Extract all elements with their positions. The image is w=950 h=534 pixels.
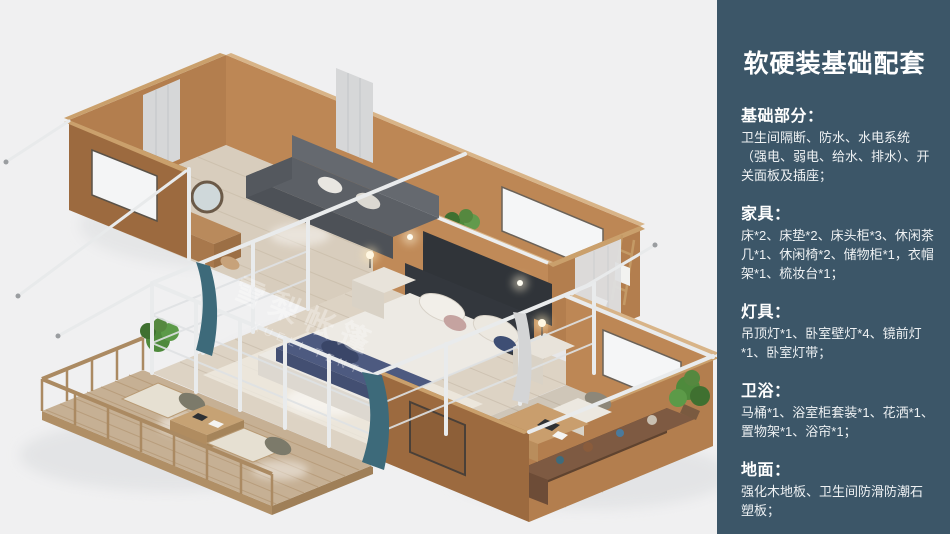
section-heading: 地面： [741,456,934,480]
section-body: 床*2、床垫*2、床头柜*3、休闲茶几*1、休闲椅*2、储物柜*1，衣帽架*1、… [741,227,934,284]
slide: 雪梨帐篷 XUELI TENT 软硬装基础配套 基础部分： 卫生间隔断、防水、水… [0,0,950,534]
curtain [336,68,373,163]
section-flooring: 地面： 强化木地板、卫生间防滑防潮石塑板； [741,456,934,521]
section-body: 卫生间隔断、防水、水电系统（强电、弱电、给水、排水）、开关面板及插座； [741,129,934,186]
lamp-icon [538,319,546,327]
sidebar-title: 软硬装基础配套 [735,44,934,80]
section-heading: 卫浴： [741,377,934,401]
curtain-teal [196,262,217,356]
section-body: 吊顶灯*1、卧室壁灯*4、镜前灯*1、卧室灯带； [741,325,934,363]
section-lighting: 灯具： 吊顶灯*1、卧室壁灯*4、镜前灯*1、卧室灯带； [741,298,934,363]
section-bathroom: 卫浴： 马桶*1、浴室柜套装*1、花洒*1、置物架*1、浴帘*1； [741,377,934,442]
section-body: 马桶*1、浴室柜套装*1、花洒*1、置物架*1、浴帘*1； [741,404,934,442]
section-heading: 家具： [741,200,934,224]
section-body: 强化木地板、卫生间防滑防潮石塑板； [741,483,934,521]
mirror [192,182,222,212]
section-furniture: 家具： 床*2、床垫*2、床头柜*3、休闲茶几*1、休闲椅*2、储物柜*1，衣帽… [741,200,934,284]
section-heading: 基础部分： [741,102,934,126]
lamp-icon [366,251,374,259]
section-basics: 基础部分： 卫生间隔断、防水、水电系统（强电、弱电、给水、排水）、开关面板及插座… [741,102,934,186]
spec-sidebar: 软硬装基础配套 基础部分： 卫生间隔断、防水、水电系统（强电、弱电、给水、排水）… [717,0,950,534]
floorplan-render: 雪梨帐篷 XUELI TENT [0,0,717,534]
section-heading: 灯具： [741,298,934,322]
render-area: 雪梨帐篷 XUELI TENT [0,0,717,534]
